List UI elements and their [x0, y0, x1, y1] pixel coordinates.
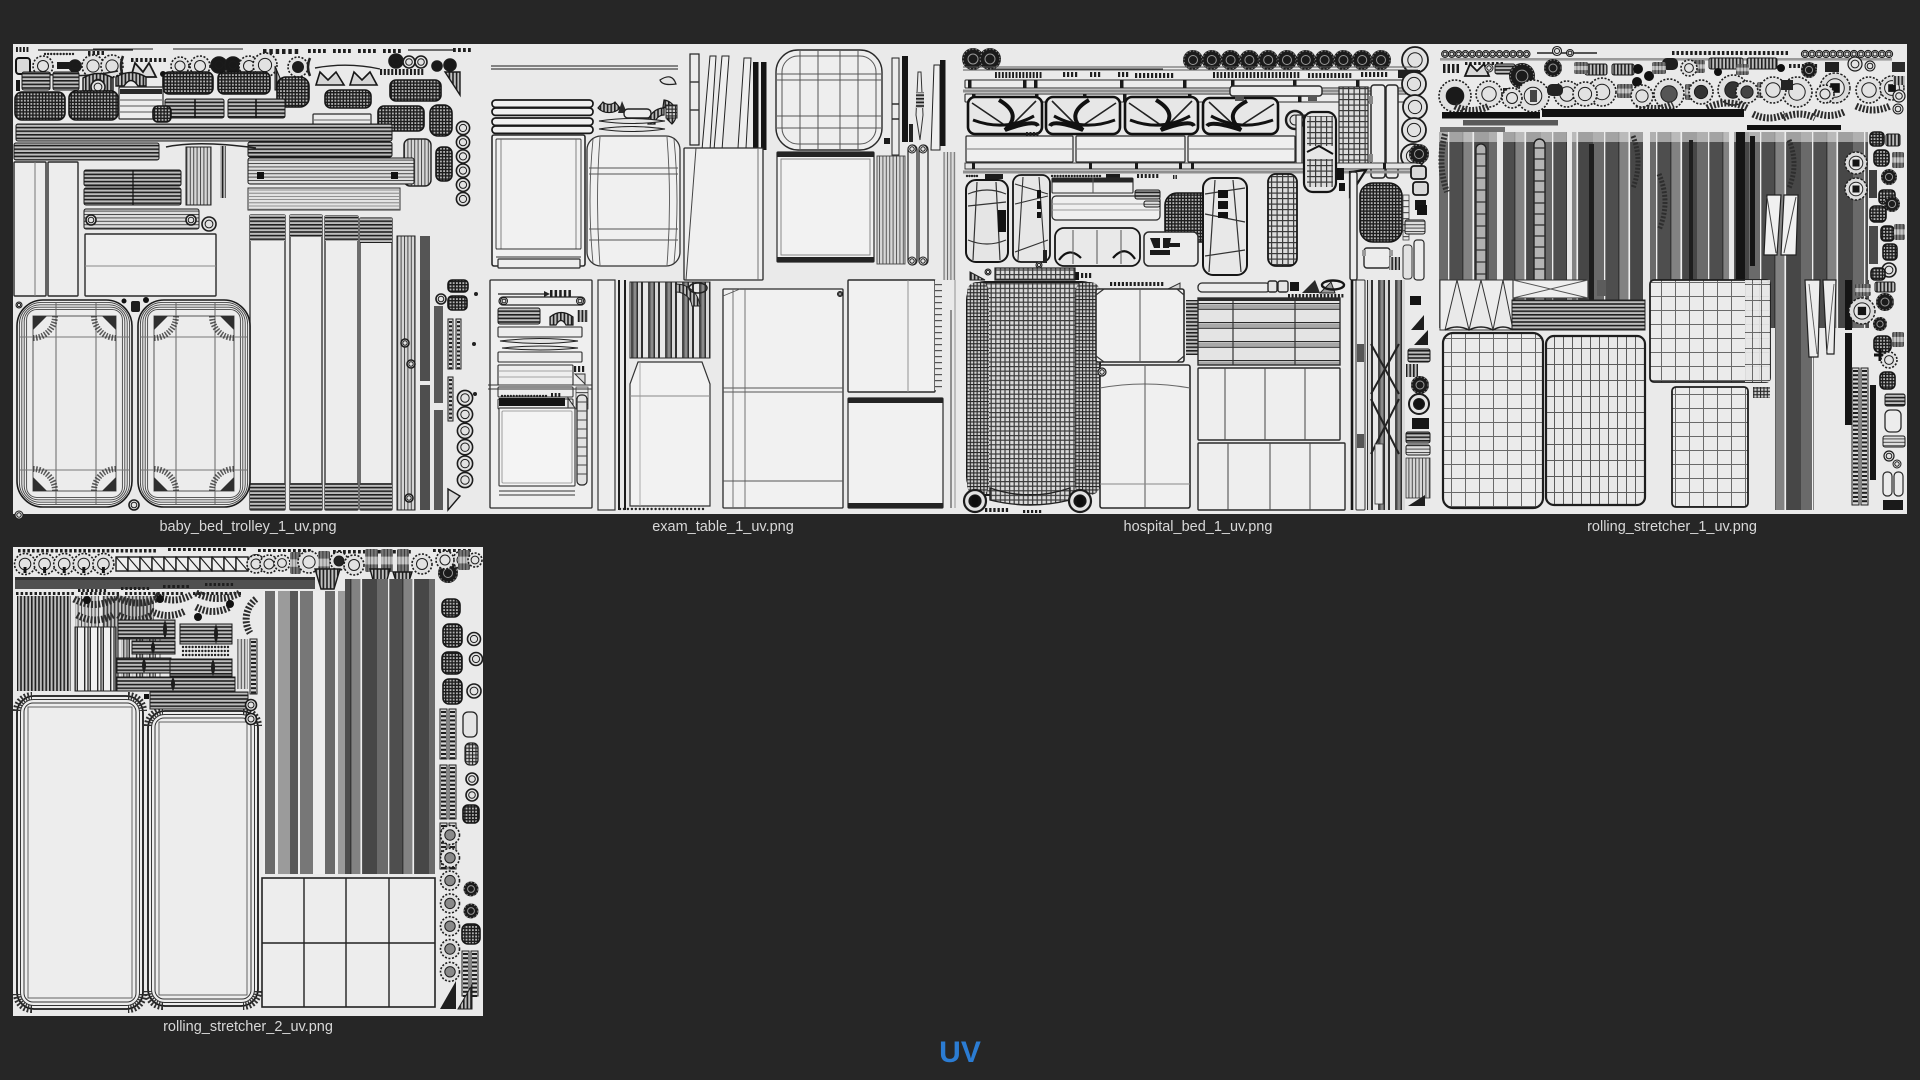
svg-text:baby_bed_trolley_1_uv.png: baby_bed_trolley_1_uv.png: [159, 519, 336, 535]
svg-text:exam_table_1_uv.png: exam_table_1_uv.png: [652, 519, 794, 535]
svg-text:hospital_bed_1_uv.png: hospital_bed_1_uv.png: [1124, 519, 1273, 535]
svg-text:rolling_stretcher_1_uv.png: rolling_stretcher_1_uv.png: [1587, 519, 1757, 535]
svg-text:rolling_stretcher_2_uv.png: rolling_stretcher_2_uv.png: [163, 1019, 333, 1035]
svg-text:UV: UV: [939, 1036, 981, 1069]
